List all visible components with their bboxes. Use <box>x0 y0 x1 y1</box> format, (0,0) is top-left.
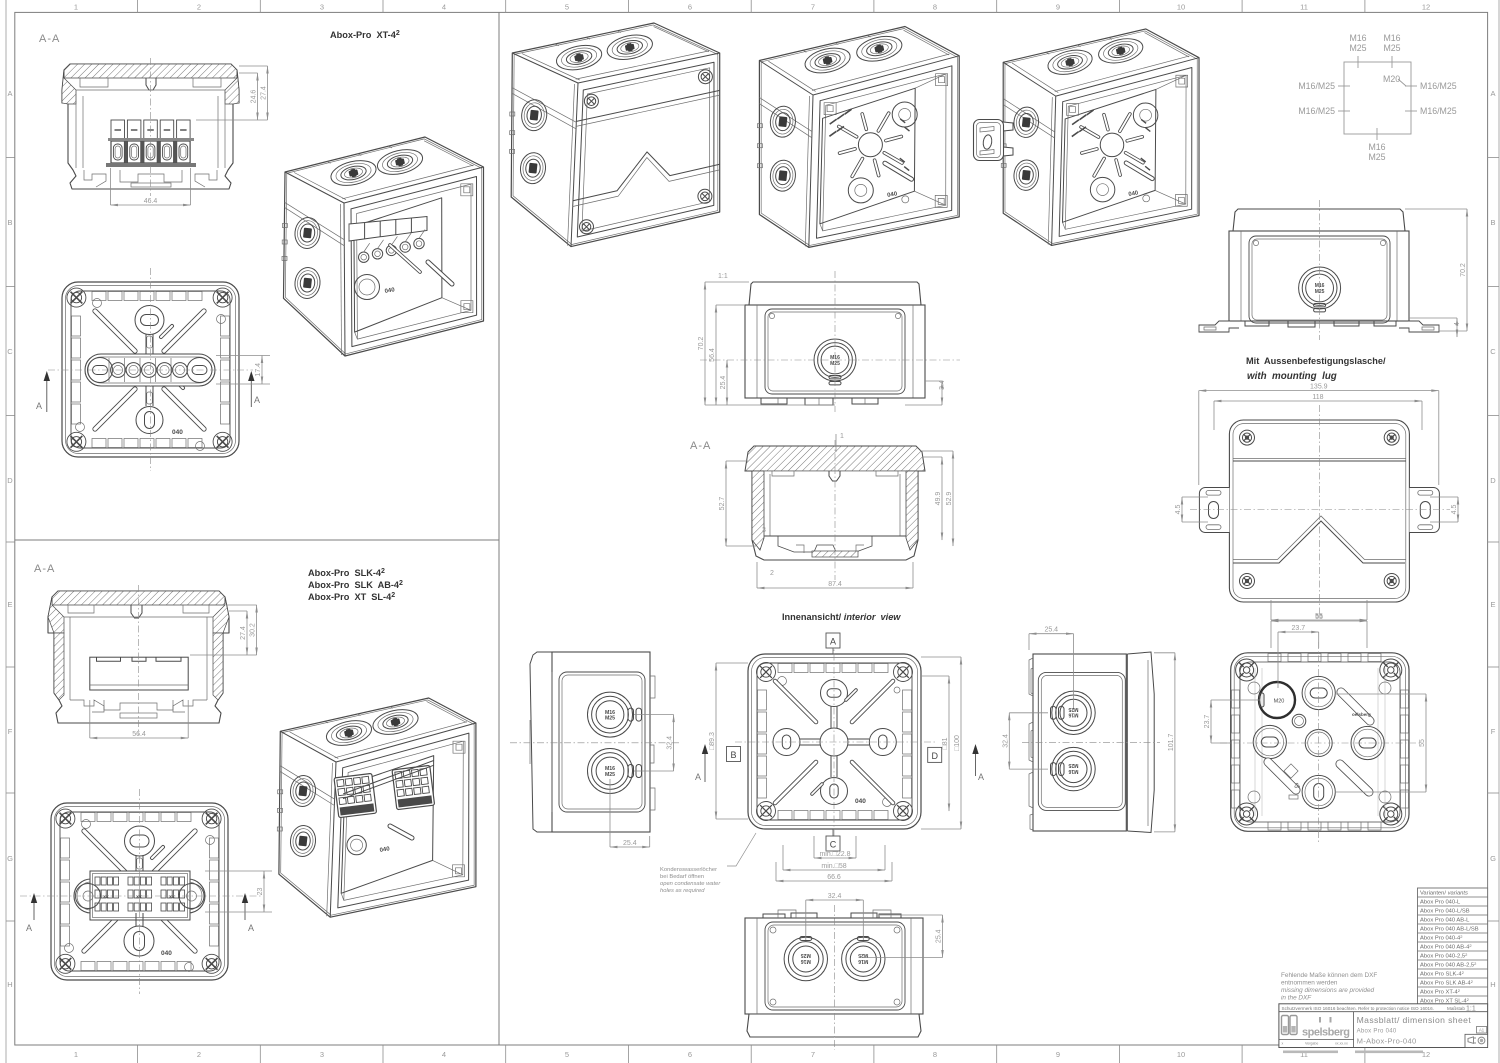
svg-text:135.9: 135.9 <box>1310 384 1328 391</box>
svg-text:56.4: 56.4 <box>132 731 146 738</box>
svg-text:Abox Pro XT-42: Abox Pro XT-42 <box>1420 988 1461 996</box>
svg-text:xx.xx.xx: xx.xx.xx <box>1335 1042 1348 1046</box>
svg-text:1: 1 <box>74 3 78 12</box>
svg-text:A: A <box>830 637 836 647</box>
svg-text:A: A <box>26 923 32 933</box>
svg-text:Maßstab: Maßstab <box>1447 1006 1465 1011</box>
svg-text:B: B <box>1490 218 1495 227</box>
svg-text:A: A <box>36 401 42 411</box>
svg-text:A: A <box>1490 89 1495 98</box>
svg-text:27.4: 27.4 <box>240 626 247 640</box>
svg-text:F: F <box>8 727 13 736</box>
svg-text:Schutzvermerk ISO 16016 beacht: Schutzvermerk ISO 16016 beachten. Refer … <box>1282 1006 1434 1011</box>
svg-text:11: 11 <box>1300 3 1308 12</box>
svg-text:□100: □100 <box>954 735 961 751</box>
svg-text:M25: M25 <box>1349 43 1366 53</box>
svg-text:M20: M20 <box>1383 74 1400 84</box>
svg-text:□81: □81 <box>942 737 949 749</box>
svg-text:open condensate water: open condensate water <box>660 881 721 887</box>
svg-text:M25: M25 <box>1383 43 1400 53</box>
svg-text:Kondenswasserlöcher: Kondenswasserlöcher <box>660 867 717 873</box>
svg-text:12: 12 <box>1422 1050 1430 1059</box>
svg-text:040: 040 <box>172 429 183 436</box>
svg-text:1:1: 1:1 <box>718 273 728 280</box>
svg-text:M-Abox-Pro-040: M-Abox-Pro-040 <box>1357 1037 1417 1046</box>
svg-text:10: 10 <box>1177 1050 1185 1059</box>
svg-text:in the DXF: in the DXF <box>1281 995 1312 1002</box>
svg-text:Varianten/ variants: Varianten/ variants <box>1420 891 1468 897</box>
svg-text:A: A <box>7 89 12 98</box>
svg-text:x: x <box>1282 1042 1284 1046</box>
svg-text:M25: M25 <box>1368 152 1385 162</box>
svg-text:1: 1 <box>74 1050 78 1059</box>
svg-text:min.□22.8: min.□22.8 <box>819 851 850 858</box>
svg-text:2: 2 <box>197 3 201 12</box>
svg-text:M16/M25: M16/M25 <box>1298 106 1335 116</box>
svg-text:Abox Pro SLK-42: Abox Pro SLK-42 <box>1420 970 1465 978</box>
svg-text:A-A: A-A <box>690 440 711 452</box>
svg-text:4.5: 4.5 <box>1451 505 1458 515</box>
svg-text:××: ×× <box>169 895 175 901</box>
svg-text:D: D <box>7 476 13 485</box>
svg-text:missing dimensions are provide: missing dimensions are provided <box>1281 987 1375 994</box>
svg-text:A1: A1 <box>1479 1028 1485 1033</box>
svg-text:spelsberg: spelsberg <box>1302 1027 1349 1039</box>
svg-text:M16: M16 <box>1383 33 1400 43</box>
svg-text:with mounting lug: with mounting lug <box>1247 371 1337 382</box>
svg-text:A-A: A-A <box>39 33 60 45</box>
svg-text:66.6: 66.6 <box>827 874 841 881</box>
svg-text:55: 55 <box>1419 739 1426 747</box>
svg-text:25.4: 25.4 <box>720 376 727 390</box>
svg-text:F: F <box>1491 727 1496 736</box>
svg-text:4: 4 <box>442 1050 446 1059</box>
svg-text:M20: M20 <box>1274 699 1285 705</box>
svg-text:Vergabe: Vergabe <box>1305 1042 1318 1046</box>
svg-text:70.2: 70.2 <box>698 337 705 351</box>
svg-text:min.□58: min.□58 <box>821 863 846 870</box>
svg-text:A: A <box>978 772 984 782</box>
svg-text:12: 12 <box>1422 3 1430 12</box>
svg-text:holes as required: holes as required <box>660 888 705 894</box>
svg-text:entnommen werden: entnommen werden <box>1281 980 1338 987</box>
svg-text:B: B <box>7 218 12 227</box>
svg-text:Fehlende Maße können dem DXF: Fehlende Maße können dem DXF <box>1281 972 1377 979</box>
svg-text:A: A <box>254 395 260 405</box>
svg-text:M25: M25 <box>605 772 615 778</box>
svg-text:46.4: 46.4 <box>144 198 158 205</box>
svg-text:♳: ♳ <box>1294 782 1300 790</box>
svg-text:3: 3 <box>320 3 324 12</box>
svg-text:Abox-Pro XT SL-42: Abox-Pro XT SL-42 <box>308 592 395 602</box>
svg-text:Abox Pro 040 AB-42: Abox Pro 040 AB-42 <box>1420 943 1472 951</box>
svg-text:24.6: 24.6 <box>251 90 258 104</box>
svg-text:8: 8 <box>933 1050 937 1059</box>
svg-text:6: 6 <box>688 1050 692 1059</box>
svg-text:4: 4 <box>442 3 446 12</box>
svg-text:H: H <box>7 980 12 989</box>
svg-text:7: 7 <box>811 1050 815 1059</box>
svg-text:M16/M25: M16/M25 <box>1298 81 1335 91</box>
svg-text:32.4: 32.4 <box>1002 734 1009 748</box>
svg-text:Abox Pro 040-42: Abox Pro 040-42 <box>1420 934 1463 942</box>
svg-text:040: 040 <box>161 950 172 957</box>
svg-text:118: 118 <box>1312 394 1323 401</box>
svg-text:9: 9 <box>1056 1050 1060 1059</box>
svg-text:101.7: 101.7 <box>1168 733 1175 751</box>
svg-text:M16: M16 <box>1368 142 1385 152</box>
svg-text:Abox Pro 040: Abox Pro 040 <box>1357 1029 1397 1035</box>
svg-text:M16/M25: M16/M25 <box>1420 81 1457 91</box>
svg-text:Abox Pro 040 AB-L: Abox Pro 040 AB-L <box>1420 918 1470 924</box>
svg-text:C: C <box>1490 347 1496 356</box>
svg-text:A: A <box>248 923 254 933</box>
svg-text:Abox Pro 040 AB-L/SB: Abox Pro 040 AB-L/SB <box>1420 927 1479 933</box>
svg-text:Abox Pro 040 AB-2,52: Abox Pro 040 AB-2,52 <box>1420 961 1477 969</box>
svg-text:2: 2 <box>197 1050 201 1059</box>
svg-text:30.2: 30.2 <box>250 623 257 637</box>
svg-text:E: E <box>7 600 12 609</box>
svg-text:Abox Pro 040-L/SB: Abox Pro 040-L/SB <box>1420 909 1470 915</box>
svg-text:9: 9 <box>1056 3 1060 12</box>
svg-text:A-A: A-A <box>34 563 55 575</box>
svg-text:M25: M25 <box>605 716 615 722</box>
svg-text:23.7: 23.7 <box>1292 625 1306 632</box>
svg-text:C: C <box>7 347 13 356</box>
svg-text:5: 5 <box>565 1050 569 1059</box>
svg-text:M16/M25: M16/M25 <box>1420 106 1457 116</box>
svg-text:23.7: 23.7 <box>1204 715 1211 729</box>
svg-text:M25: M25 <box>1068 762 1078 768</box>
svg-text:4: 4 <box>1454 322 1461 326</box>
svg-text:4.5: 4.5 <box>1175 505 1182 515</box>
svg-text:M16: M16 <box>1349 33 1366 43</box>
svg-text:3: 3 <box>762 527 766 534</box>
svg-text:55: 55 <box>1315 614 1323 621</box>
svg-text:Abox Pro 040-L: Abox Pro 040-L <box>1420 900 1461 906</box>
svg-text:××: ×× <box>103 895 109 901</box>
svg-text:8: 8 <box>933 3 937 12</box>
svg-text:52.7: 52.7 <box>719 497 726 511</box>
svg-text:5: 5 <box>565 3 569 12</box>
svg-text:B: B <box>730 750 736 760</box>
svg-text:32.4: 32.4 <box>667 736 674 750</box>
svg-text:Abox-Pro SLK AB-42: Abox-Pro SLK AB-42 <box>308 580 403 590</box>
svg-text:H: H <box>1490 980 1495 989</box>
svg-text:87.4: 87.4 <box>828 581 842 588</box>
svg-text:25.4: 25.4 <box>936 929 943 943</box>
svg-text:A: A <box>695 772 701 782</box>
svg-text:25.4: 25.4 <box>623 840 637 847</box>
svg-text:D: D <box>931 751 938 761</box>
svg-text:17.4: 17.4 <box>255 363 262 377</box>
svg-text:××: ×× <box>136 895 142 901</box>
svg-text:27.4: 27.4 <box>261 86 268 100</box>
svg-text:C: C <box>830 840 837 850</box>
svg-text:7: 7 <box>811 3 815 12</box>
svg-text:M25: M25 <box>801 952 811 958</box>
svg-text:10: 10 <box>1177 3 1185 12</box>
svg-text:3: 3 <box>320 1050 324 1059</box>
svg-text:Abox-Pro XT-42: Abox-Pro XT-42 <box>330 30 400 40</box>
svg-text:2: 2 <box>770 570 774 577</box>
svg-text:bei Bedarf öffnen: bei Bedarf öffnen <box>660 874 704 880</box>
svg-text:70.2: 70.2 <box>1460 263 1467 277</box>
svg-text:040: 040 <box>855 798 866 805</box>
svg-text:Mit Aussenbefestigungslasche/: Mit Aussenbefestigungslasche/ <box>1246 356 1386 366</box>
svg-text:D: D <box>1490 476 1496 485</box>
svg-text:6: 6 <box>688 3 692 12</box>
svg-text:G: G <box>7 854 13 863</box>
svg-text:G: G <box>1490 854 1496 863</box>
svg-text:32.4: 32.4 <box>828 893 842 900</box>
svg-text:Massblatt/ dimension sheet: Massblatt/ dimension sheet <box>1357 1015 1472 1025</box>
svg-text:E: E <box>1490 600 1495 609</box>
svg-text:23: 23 <box>257 888 264 896</box>
svg-text:Innenansicht/ interior view: Innenansicht/ interior view <box>782 612 901 622</box>
svg-text:49.9: 49.9 <box>935 492 942 506</box>
svg-text:Abox Pro 040-2,52: Abox Pro 040-2,52 <box>1420 952 1468 960</box>
svg-text:1: 1 <box>840 433 844 440</box>
svg-text:25.4: 25.4 <box>1044 627 1058 634</box>
svg-text:1:1: 1:1 <box>1466 1006 1476 1013</box>
svg-text:□89.3: □89.3 <box>709 732 716 750</box>
svg-text:Abox-Pro SLK-42: Abox-Pro SLK-42 <box>308 568 385 578</box>
svg-text:3.4: 3.4 <box>939 380 946 390</box>
svg-text:Abox Pro SLK AB-42: Abox Pro SLK AB-42 <box>1420 979 1474 987</box>
svg-text:oelsberg: oelsberg <box>1352 712 1371 717</box>
svg-text:56.4: 56.4 <box>709 348 716 362</box>
svg-text:52.9: 52.9 <box>946 492 953 506</box>
